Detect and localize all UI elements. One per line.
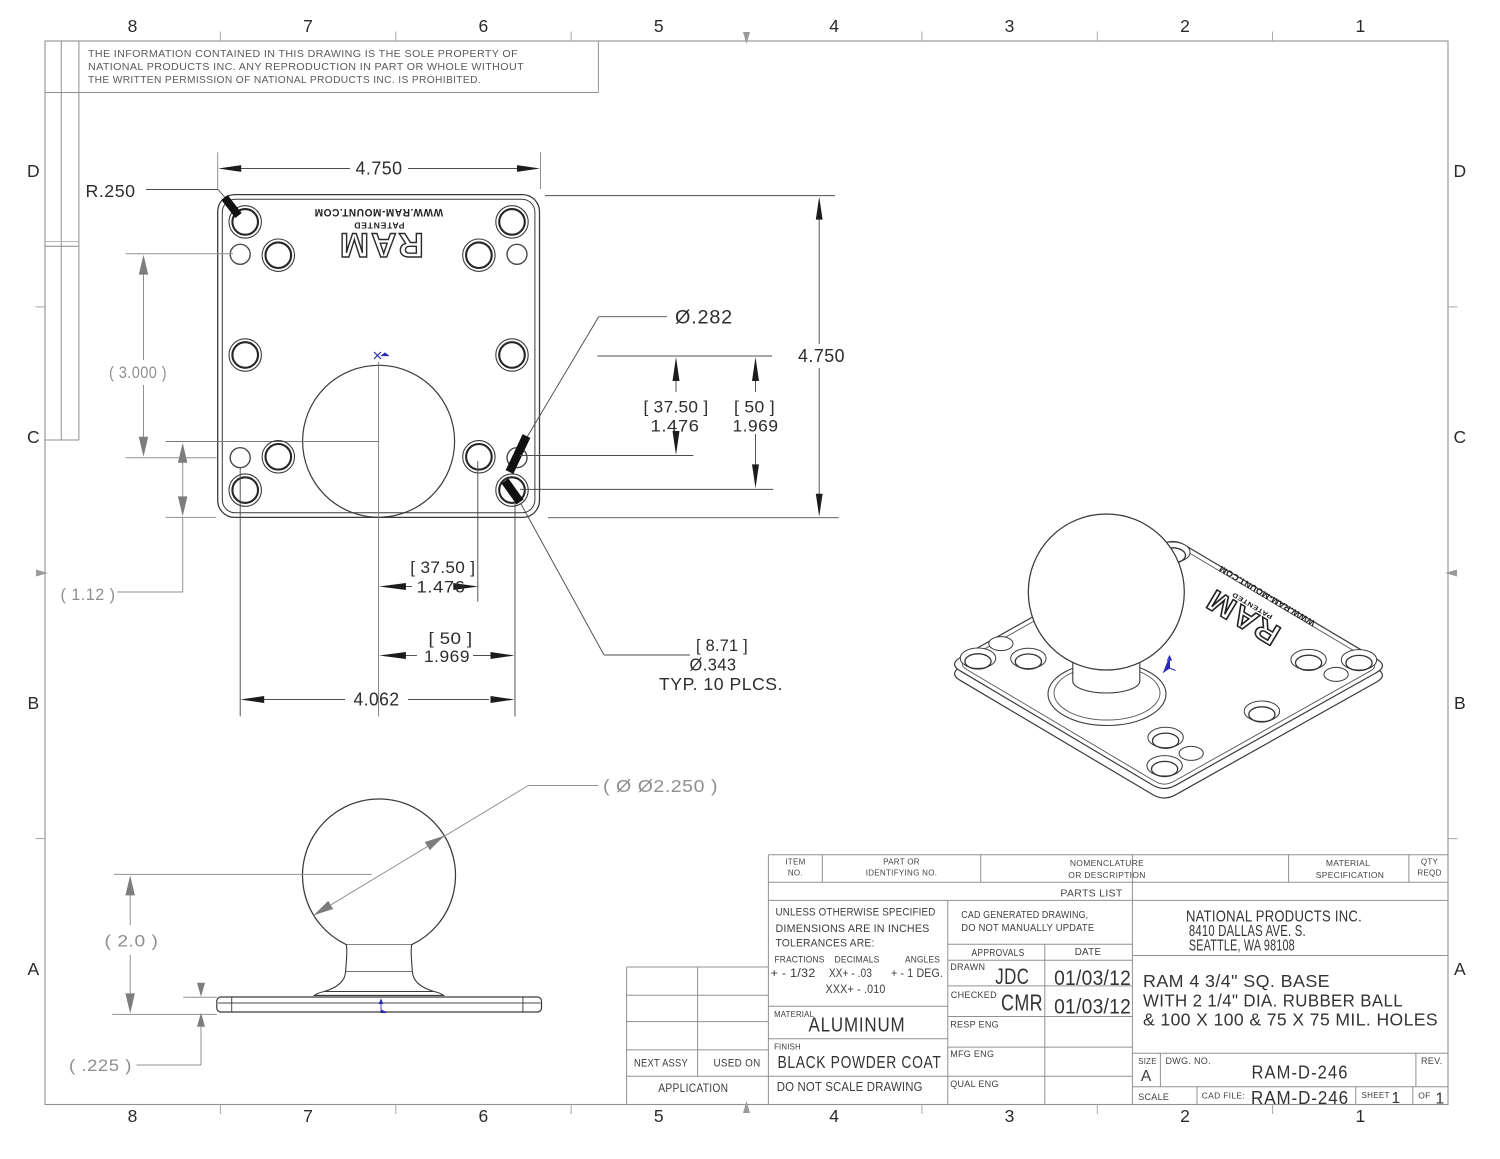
svg-text:TYP. 10 PLCS.: TYP. 10 PLCS.	[659, 674, 783, 694]
svg-text:FRACTIONS: FRACTIONS	[775, 955, 825, 965]
svg-text:7: 7	[303, 16, 313, 36]
svg-text:01/03/12: 01/03/12	[1054, 967, 1131, 990]
svg-text:APPROVALS: APPROVALS	[972, 948, 1025, 959]
svg-text:( 1.12 ): ( 1.12 )	[61, 585, 116, 604]
svg-text:ITEM: ITEM	[785, 858, 805, 867]
svg-text:B: B	[1454, 693, 1466, 713]
svg-text:A: A	[1454, 959, 1466, 979]
svg-text:[ 50 ]: [ 50 ]	[429, 630, 473, 648]
svg-text:DIMENSIONS ARE IN INCHES: DIMENSIONS ARE IN INCHES	[776, 923, 930, 935]
svg-text:C: C	[27, 427, 40, 447]
svg-text:REV.: REV.	[1421, 1056, 1442, 1066]
svg-text:+ - 1 DEG.: + - 1 DEG.	[891, 966, 943, 980]
svg-text:USED ON: USED ON	[714, 1057, 761, 1069]
svg-text:01/03/12: 01/03/12	[1054, 996, 1131, 1019]
svg-text:3: 3	[1005, 16, 1015, 36]
svg-text:APPLICATION: APPLICATION	[658, 1083, 728, 1095]
svg-text:MATERIAL: MATERIAL	[1326, 858, 1370, 868]
svg-text:DO NOT SCALE DRAWING: DO NOT SCALE DRAWING	[777, 1079, 923, 1094]
svg-text:SEATTLE, WA 98108: SEATTLE, WA 98108	[1189, 938, 1295, 955]
svg-text:MFG ENG: MFG ENG	[950, 1049, 994, 1059]
svg-text:[ 37.50 ]: [ 37.50 ]	[644, 399, 709, 417]
svg-text:2: 2	[1180, 16, 1190, 36]
svg-text:CAD FILE:: CAD FILE:	[1202, 1091, 1245, 1101]
svg-text:( 2.0 ): ( 2.0 )	[105, 932, 159, 951]
svg-text:B: B	[28, 693, 40, 713]
svg-text:Ø.282: Ø.282	[675, 308, 733, 329]
svg-text:RAM: RAM	[338, 226, 424, 264]
svg-text:5: 5	[654, 1106, 664, 1126]
svg-text:4.750: 4.750	[798, 345, 845, 366]
svg-text:ALUMINUM: ALUMINUM	[809, 1014, 906, 1037]
svg-text:THE INFORMATION CONTAINED I: THE INFORMATION CONTAINED IN THIS DRAWIN…	[88, 49, 518, 60]
svg-text:REQD: REQD	[1417, 869, 1441, 878]
svg-text:SHEET: SHEET	[1362, 1091, 1390, 1100]
svg-text:+ - 1/32: + - 1/32	[771, 966, 816, 980]
svg-text:SIZE: SIZE	[1138, 1057, 1157, 1066]
svg-text:NATIONAL PRODUCTS INC. ANY R: NATIONAL PRODUCTS INC. ANY REPRODUCTION …	[88, 62, 524, 73]
svg-text:C: C	[1454, 427, 1467, 447]
svg-text:4.750: 4.750	[356, 158, 403, 179]
svg-text:OF: OF	[1418, 1091, 1430, 1101]
svg-text:1.969: 1.969	[424, 647, 470, 666]
svg-text:( .225 ): ( .225 )	[69, 1056, 132, 1075]
svg-text:2: 2	[1180, 1106, 1190, 1126]
svg-text:1: 1	[1436, 1090, 1445, 1107]
svg-text:1: 1	[1355, 16, 1365, 36]
svg-text:NEXT ASSY: NEXT ASSY	[634, 1057, 688, 1069]
svg-text:RAM-D-246: RAM-D-246	[1251, 1087, 1349, 1108]
svg-text:Ø.343: Ø.343	[690, 655, 737, 675]
svg-text:5: 5	[654, 16, 664, 36]
svg-text:8: 8	[128, 16, 138, 36]
svg-text:1: 1	[1355, 1106, 1365, 1126]
svg-text:( 3.000 ): ( 3.000 )	[109, 363, 167, 382]
svg-text:CMR: CMR	[1001, 990, 1043, 1016]
svg-text:NO.: NO.	[788, 869, 803, 878]
svg-text:FINISH: FINISH	[774, 1043, 801, 1052]
svg-text:4.062: 4.062	[354, 690, 400, 710]
svg-text:PARTS LIST: PARTS LIST	[1060, 888, 1122, 900]
svg-text:1.476: 1.476	[417, 578, 466, 597]
svg-text:4: 4	[829, 16, 839, 36]
svg-text:RESP ENG: RESP ENG	[950, 1020, 999, 1030]
svg-text:NOMENCLATURE: NOMENCLATURE	[1070, 858, 1144, 868]
svg-text:CHECKED: CHECKED	[951, 990, 997, 1000]
svg-text:THE WRITTEN PERMISSION OF: THE WRITTEN PERMISSION OF NATIONAL PRODU…	[88, 75, 481, 86]
svg-text:DWG. NO.: DWG. NO.	[1166, 1056, 1211, 1066]
svg-text:UNLESS OTHERWISE SPECIFIED: UNLESS OTHERWISE SPECIFIED	[776, 907, 936, 919]
svg-text:TOLERANCES ARE:: TOLERANCES ARE:	[776, 938, 875, 950]
svg-text:A: A	[28, 959, 40, 979]
svg-text:D: D	[1454, 161, 1467, 181]
svg-text:SCALE: SCALE	[1138, 1092, 1169, 1102]
svg-text:8: 8	[128, 1106, 138, 1126]
svg-text:WWW.RAM-MOUNT.COM: WWW.RAM-MOUNT.COM	[314, 206, 443, 218]
svg-text:IDENTIFYING NO.: IDENTIFYING NO.	[866, 869, 938, 878]
svg-text:6: 6	[478, 16, 488, 36]
svg-text:3: 3	[1005, 1106, 1015, 1126]
svg-text:QUAL ENG: QUAL ENG	[950, 1079, 999, 1089]
svg-text:[ 8.71 ]: [ 8.71 ]	[696, 636, 748, 655]
svg-text:6: 6	[478, 1106, 488, 1126]
svg-text:RAM-D-246: RAM-D-246	[1252, 1063, 1349, 1083]
svg-text:& 100 X 100 & 75 X 75 MIL. HOL: & 100 X 100 & 75 X 75 MIL. HOLES	[1143, 1010, 1438, 1030]
svg-text:1.969: 1.969	[733, 417, 779, 436]
svg-text:PART OR: PART OR	[883, 858, 920, 867]
svg-text:JDC: JDC	[995, 964, 1029, 989]
svg-text:R.250: R.250	[86, 181, 136, 201]
svg-text:WITH 2 1/4" DIA. RUBBER BALL: WITH 2 1/4" DIA. RUBBER BALL	[1143, 991, 1403, 1011]
svg-text:D: D	[27, 161, 40, 181]
svg-text:1.476: 1.476	[651, 417, 700, 436]
svg-text:DO NOT MANUALLY UPDATE: DO NOT MANUALLY UPDATE	[961, 923, 1094, 934]
svg-text:DECIMALS: DECIMALS	[835, 955, 880, 965]
svg-text:DATE: DATE	[1075, 947, 1102, 958]
svg-text:OR DESCRIPTION: OR DESCRIPTION	[1068, 870, 1145, 880]
svg-text:XX+ - .03: XX+ - .03	[829, 966, 872, 980]
svg-text:SPECIFICATION: SPECIFICATION	[1316, 870, 1384, 880]
svg-text:7: 7	[303, 1106, 313, 1126]
svg-text:QTY: QTY	[1421, 858, 1439, 867]
svg-text:( Ø Ø2.250 ): ( Ø Ø2.250 )	[603, 776, 718, 796]
svg-text:[ 37.50 ]: [ 37.50 ]	[410, 559, 475, 577]
svg-text:A: A	[1141, 1068, 1152, 1085]
svg-text:XXX+ - .010: XXX+ - .010	[826, 982, 886, 996]
svg-text:[ 50 ]: [ 50 ]	[734, 399, 775, 417]
svg-text:RAM 4 3/4" SQ. BASE: RAM 4 3/4" SQ. BASE	[1143, 971, 1330, 991]
svg-text:ANGLES: ANGLES	[905, 955, 940, 965]
svg-text:DRAWN: DRAWN	[950, 962, 985, 972]
svg-text:1: 1	[1392, 1090, 1401, 1107]
svg-text:4: 4	[829, 1106, 839, 1126]
svg-text:BLACK POWDER COAT: BLACK POWDER COAT	[778, 1052, 942, 1072]
svg-text:CAD GENERATED DRAWING,: CAD GENERATED DRAWING,	[961, 910, 1088, 921]
